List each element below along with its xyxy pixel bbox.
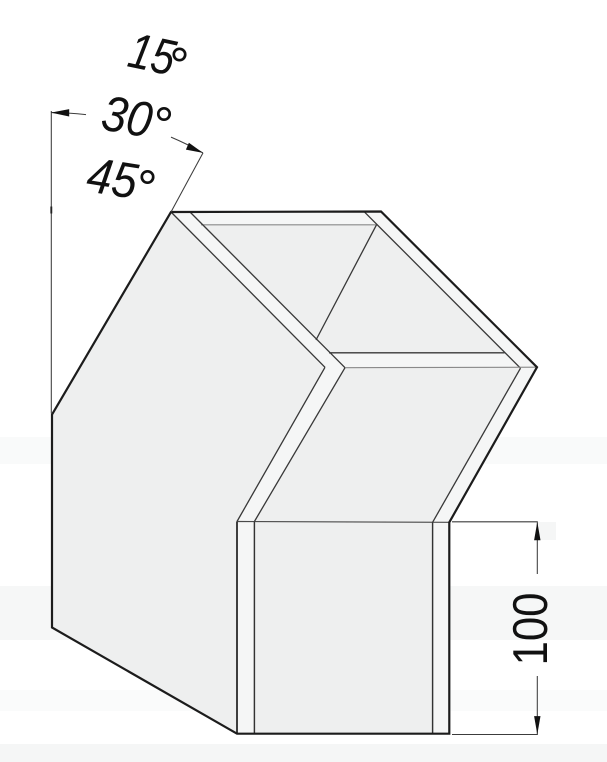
- svg-text:100: 100: [504, 593, 558, 666]
- svg-text:45: 45: [83, 147, 141, 210]
- svg-text:30: 30: [98, 85, 157, 149]
